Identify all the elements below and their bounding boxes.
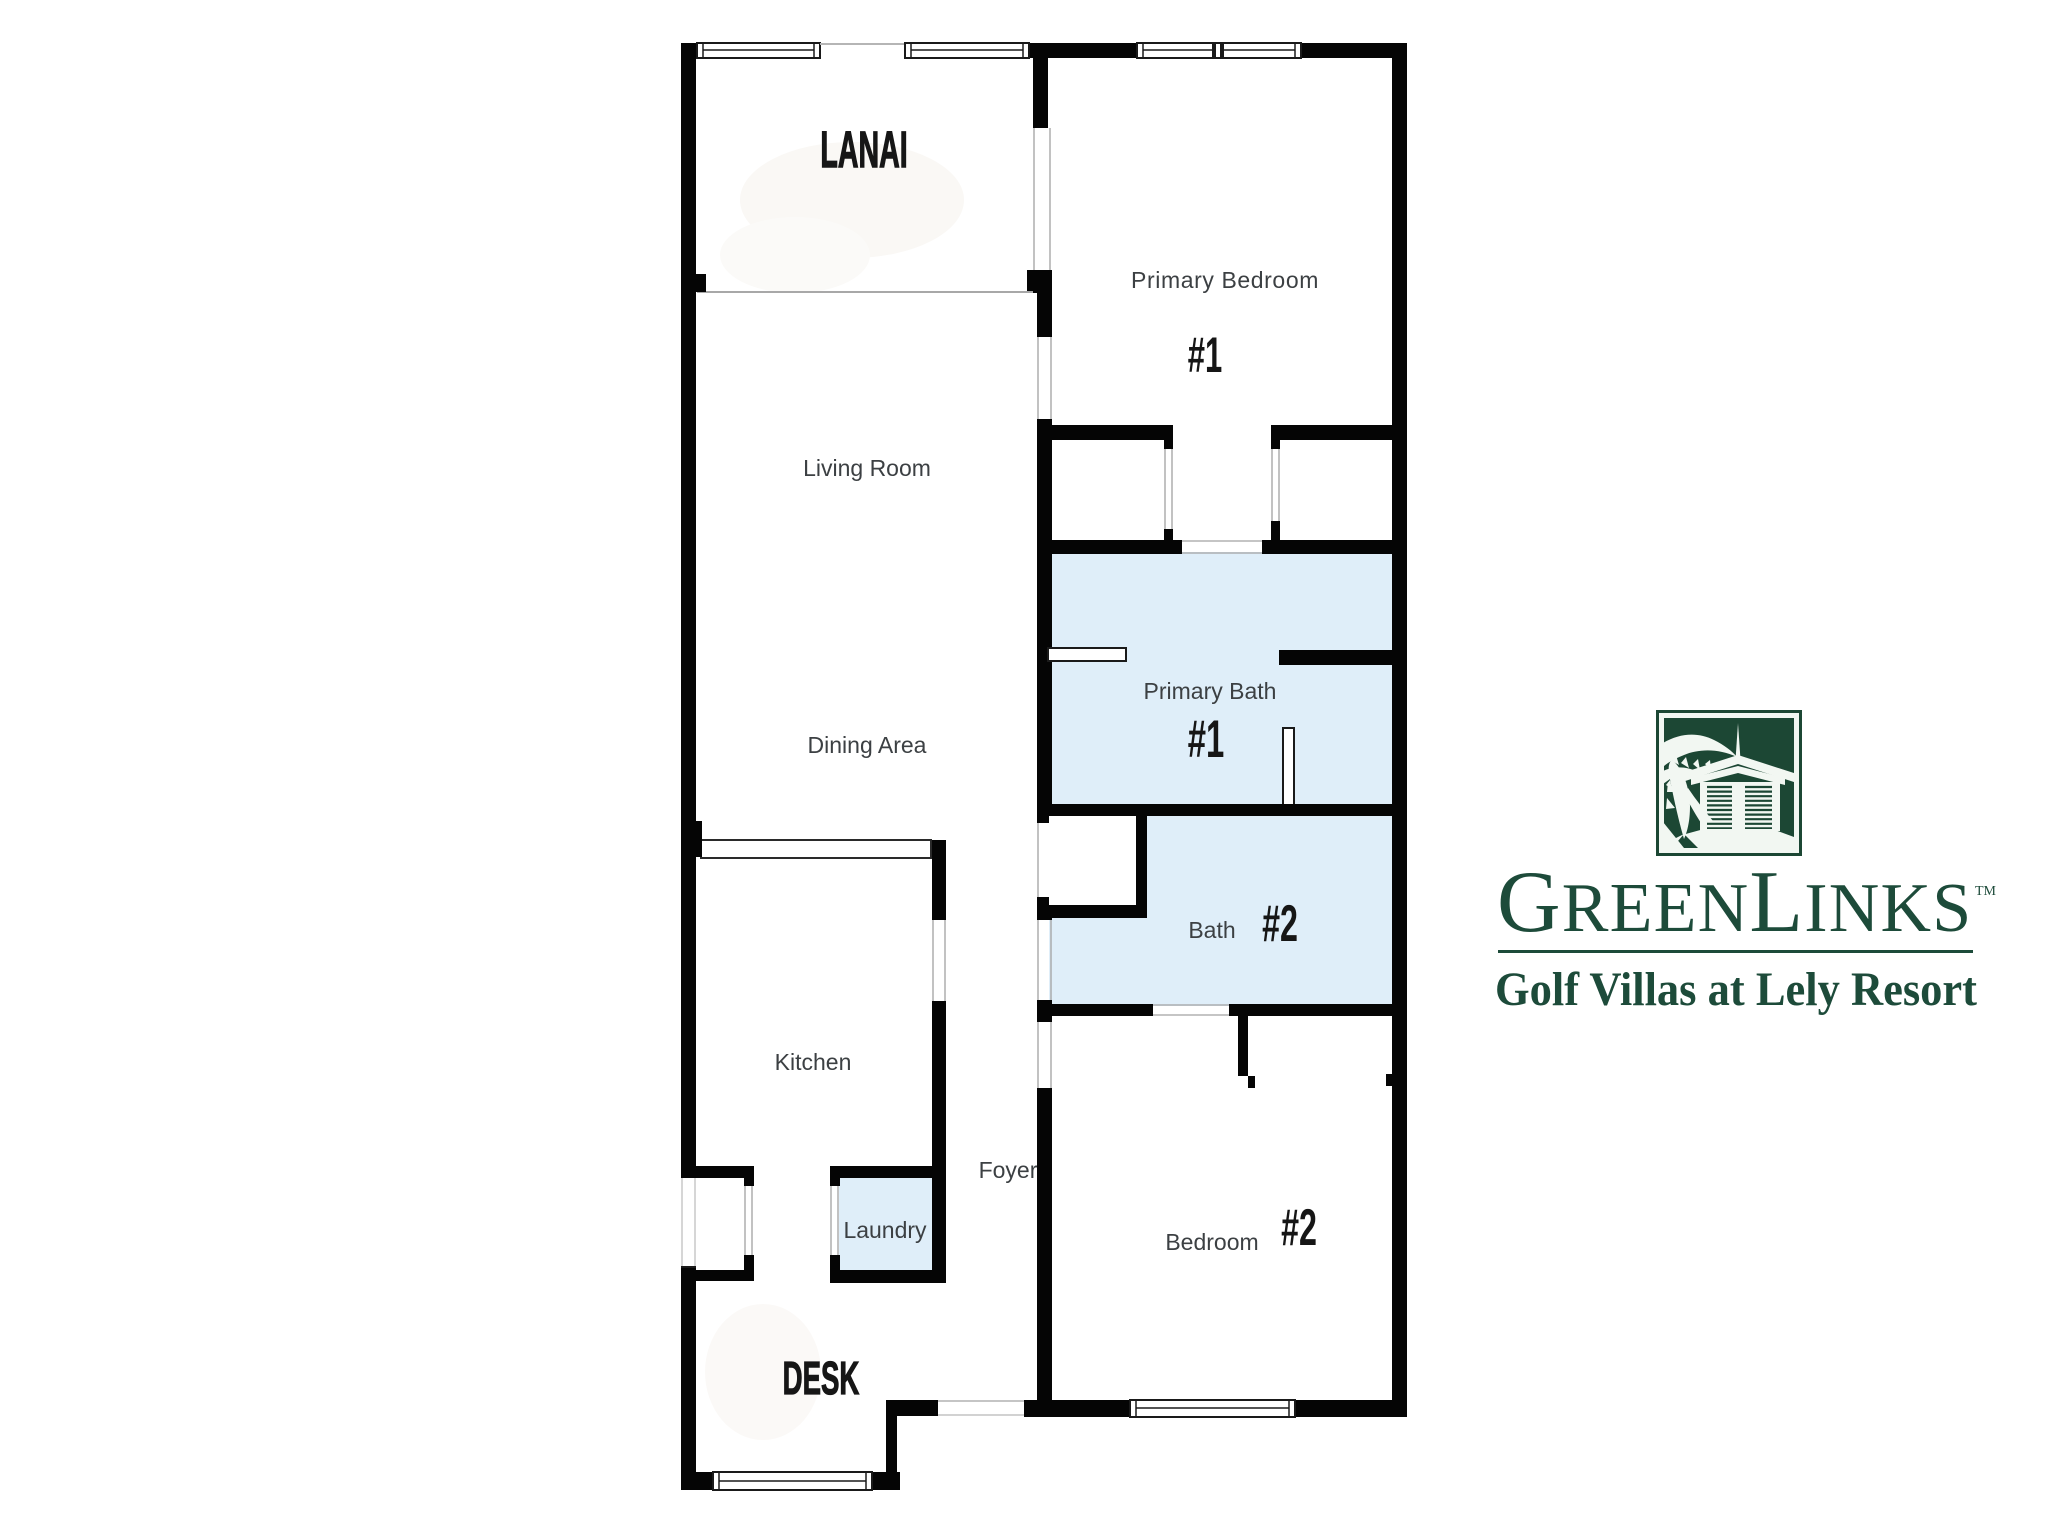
svg-text:Primary Bath: Primary Bath xyxy=(1144,678,1277,704)
svg-text:#1: #1 xyxy=(1188,326,1222,382)
svg-text:#2: #2 xyxy=(1262,895,1298,953)
svg-text:#1: #1 xyxy=(1188,710,1225,769)
svg-text:Kitchen: Kitchen xyxy=(775,1049,852,1075)
svg-text:Bath: Bath xyxy=(1188,917,1235,943)
svg-text:Dining Area: Dining Area xyxy=(808,732,927,758)
svg-text:Laundry: Laundry xyxy=(843,1217,927,1243)
svg-text:Bedroom: Bedroom xyxy=(1165,1229,1258,1255)
svg-text:TM: TM xyxy=(1975,884,1997,899)
svg-text:#2: #2 xyxy=(1281,1199,1317,1257)
svg-text:LANAI: LANAI xyxy=(820,121,907,178)
svg-text:Foyer: Foyer xyxy=(979,1157,1038,1183)
svg-text:Living Room: Living Room xyxy=(803,455,931,481)
svg-text:Golf Villas at Lely Resort: Golf Villas at Lely Resort xyxy=(1495,963,1977,1016)
svg-text:DESK: DESK xyxy=(783,1354,860,1405)
svg-text:Primary Bedroom: Primary Bedroom xyxy=(1131,267,1319,293)
